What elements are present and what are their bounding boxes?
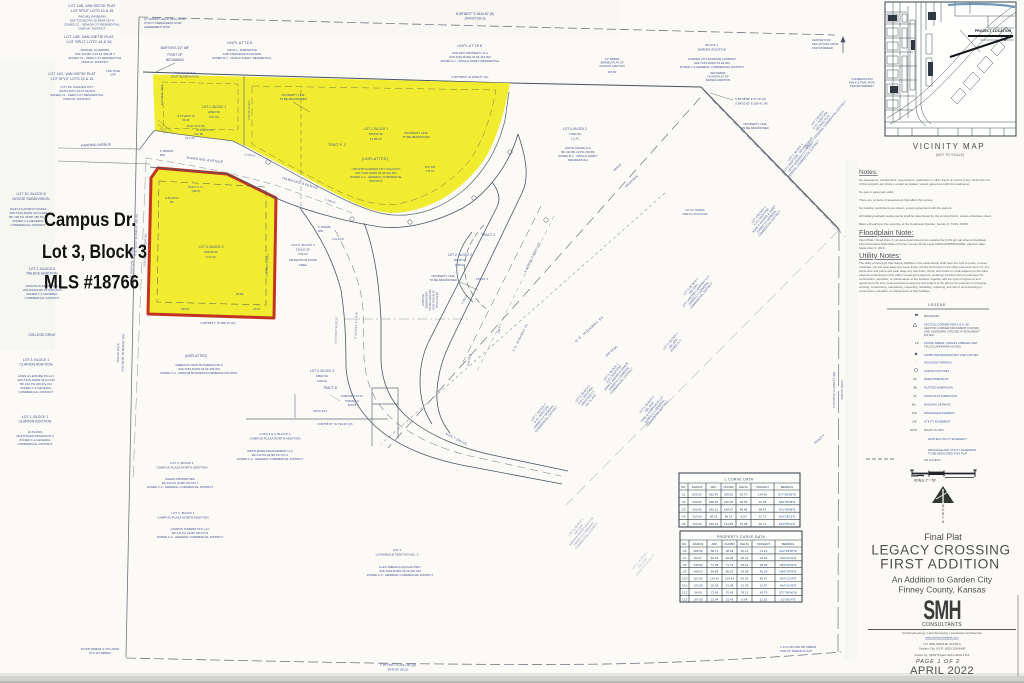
svg-text:RADIUS: RADIUS — [693, 542, 704, 546]
svg-text:S43°18'58"W: S43°18'58"W — [779, 549, 797, 553]
svg-text:VICINITY MAP: VICINITY MAP — [913, 142, 985, 151]
svg-text:12.85 AC: 12.85 AC — [370, 137, 382, 141]
svg-text:S 47°28'47" W: S 47°28'47" W — [177, 114, 195, 118]
svg-text:385.00: 385.00 — [693, 549, 703, 553]
svg-text:MASTER UTILITY EASEMENT: MASTER UTILITY EASEMENT — [928, 437, 967, 441]
svg-text:20.05: 20.05 — [711, 584, 719, 588]
svg-text:(NET±): (NET±) — [192, 189, 201, 193]
svg-text:BOUNDARY: BOUNDARY — [924, 314, 940, 318]
svg-text:1.1 AC: 1.1 AC — [571, 137, 580, 141]
svg-text:B/L: B/L — [912, 403, 917, 407]
svg-text:C7: C7 — [683, 556, 687, 560]
svg-text:6' SIDEWK: 6' SIDEWK — [160, 149, 174, 153]
svg-text:LOT SPLIT LOTS 14 & 15: LOT SPLIT LOTS 14 & 15 — [51, 77, 94, 81]
svg-text:99418 SF: 99418 SF — [454, 258, 467, 262]
svg-text:LOT 14C, VAN GIETIE PLAT: LOT 14C, VAN GIETIE PLAT — [48, 72, 96, 76]
svg-text:CAMPUS PLAZA NORTH ADDITION: CAMPUS PLAZA NORTH ADDITION — [157, 466, 208, 470]
svg-text:INTO THIS PLAT: INTO THIS PLAT — [432, 290, 436, 310]
svg-text:CLARION ADDITION: CLARION ADDITION — [19, 363, 53, 367]
svg-text:RESIDENTIAL): RESIDENTIAL) — [568, 158, 588, 162]
svg-text:Drawn by: MSW Project 2101-49: Drawn by: MSW Project 2101-4919-1714 — [915, 653, 970, 657]
svg-text:(D): (D) — [913, 377, 917, 381]
svg-text:BEGINNING: BEGINNING — [166, 58, 184, 62]
svg-text:COMMERCIAL DISTRICT: COMMERCIAL DISTRICT — [19, 390, 54, 394]
svg-text:18.41: 18.41 — [741, 556, 749, 560]
svg-text:6416 B: 6416 B — [348, 403, 357, 407]
svg-text:150.23: 150.23 — [709, 522, 719, 526]
svg-text:34843 SF: 34843 SF — [316, 374, 329, 378]
svg-text:S 89°58'07" E 1069.07' (D): S 89°58'07" E 1069.07' (D) — [452, 75, 489, 79]
svg-text:ARC: ARC — [712, 542, 718, 546]
svg-text:NO.: NO. — [682, 542, 687, 546]
svg-text:2640.00' (GLO): 2640.00' (GLO) — [840, 380, 844, 399]
svg-text:LOT 3, BLOCK 1: LOT 3, BLOCK 1 — [23, 358, 49, 362]
svg-text:SET REBAR: SET REBAR — [710, 71, 725, 75]
svg-text:An Addition to Garden City: An Addition to Garden City — [892, 575, 993, 585]
svg-text:205.96': 205.96' — [608, 70, 617, 74]
svg-text:140.00: 140.00 — [693, 563, 703, 567]
svg-text:71.76: 71.76 — [726, 563, 734, 567]
svg-text:ZONED R-1 - SINGLE FAMILY RESI: ZONED R-1 - SINGLE FAMILY RESIDENTIAL — [212, 56, 272, 60]
svg-text:LEGACY CROSSING: LEGACY CROSSING — [871, 543, 1010, 558]
svg-text:LOT 1, BLOCK 1: LOT 1, BLOCK 1 — [171, 511, 195, 515]
svg-text:70.46: 70.46 — [726, 590, 734, 594]
svg-text:SHOW PLAT DIMENSION: SHOW PLAT DIMENSION — [924, 394, 957, 398]
svg-text:89.93: 89.93 — [726, 570, 734, 574]
svg-text:58.32: 58.32 — [710, 515, 718, 519]
svg-text:0.80 AC: 0.80 AC — [317, 379, 327, 383]
svg-text:459.63: 459.63 — [693, 570, 703, 574]
svg-text:C3: C3 — [682, 507, 686, 511]
svg-text:LOT 14B, VAN GIETIE PLAT: LOT 14B, VAN GIETIE PLAT — [68, 4, 116, 8]
svg-text:25' B/L: 25' B/L — [236, 292, 245, 296]
svg-text:25.9' R/S: 25.9' R/S — [425, 165, 436, 169]
svg-text:58.29: 58.29 — [725, 515, 733, 519]
svg-text:188.48: 188.48 — [709, 500, 719, 504]
svg-text:TO BE DEDICATED THIS PLAT: TO BE DEDICATED THIS PLAT — [928, 452, 968, 456]
svg-text:52.14: 52.14 — [741, 549, 749, 553]
svg-text:COMPUTED/MARKER SET LINE CAP S: COMPUTED/MARKER SET LINE CAP SET — [924, 353, 979, 357]
svg-text:35.97' 25.9' B/L: 35.97' 25.9' B/L — [187, 124, 206, 128]
svg-text:NOVOE SUBDIVISION: NOVOE SUBDIVISION — [12, 197, 50, 201]
svg-text:RADIUS: RADIUS — [692, 485, 703, 489]
svg-text:SUBDIVISION: SUBDIVISION — [425, 292, 429, 309]
svg-text:S 01°05' E 142.1: S 01°05' E 142.1 — [247, 100, 251, 120]
svg-text:S64°12'24"E: S64°12'24"E — [780, 577, 797, 581]
svg-text:S37°58'46"W: S37°58'46"W — [779, 590, 797, 594]
svg-text:LOT 3, BLOCK 3: LOT 3, BLOCK 3 — [199, 245, 224, 249]
svg-text:RIGHT OF WAY: RIGHT OF WAY — [924, 428, 944, 432]
svg-text:N77°58'58"W: N77°58'58"W — [778, 493, 796, 497]
svg-text:CLARION ROOTION: CLARION ROOTION — [19, 420, 52, 424]
svg-text:84.33: 84.33 — [711, 556, 719, 560]
svg-text:4.41.23 W: 4.41.23 W — [332, 237, 344, 241]
svg-text:UNPLATTED: UNPLATTED — [227, 41, 253, 45]
svg-text:LOT 4, BLOCK 2: LOT 4, BLOCK 2 — [563, 127, 587, 131]
svg-text:BARNES ADDITION: BARNES ADDITION — [698, 48, 726, 52]
svg-text:84.05: 84.05 — [726, 556, 734, 560]
svg-text:D/E: D/E — [912, 411, 917, 415]
svg-text:S 58°02'02" E 206.41' (P): S 58°02'02" E 206.41' (P) — [735, 102, 768, 106]
svg-text:C8: C8 — [683, 563, 687, 567]
svg-text:5.72 AC: 5.72 AC — [206, 255, 216, 259]
svg-text:78.11: 78.11 — [741, 590, 749, 594]
svg-text:ZONED C-2 - GENERAL COMMERCIAL: ZONED C-2 - GENERAL COMMERCIAL DISTRICT — [157, 535, 224, 539]
svg-text:20.05: 20.05 — [740, 500, 748, 504]
svg-text:110.00: 110.00 — [694, 577, 703, 581]
svg-text:717 3RD AVENUE, SUITE A: 717 3RD AVENUE, SUITE A — [923, 642, 961, 646]
svg-text:Garden City, KS P: (620) 260-: Garden City, KS P: (620) 260-8400 — [919, 647, 966, 651]
svg-text:C2: C2 — [682, 500, 686, 504]
svg-text:COMMERCIAL DISTRICT: COMMERCIAL DISTRICT — [11, 223, 46, 227]
svg-text:BARNES PLAT OF: BARNES PLAT OF — [601, 61, 624, 65]
svg-text:S1°58'24"E: S1°58'24"E — [780, 597, 795, 601]
svg-text:LOT 2, BLOCK 1: LOT 2, BLOCK 1 — [364, 127, 388, 131]
svg-text:28.00: 28.00 — [760, 563, 768, 567]
svg-text:FND 1/2" REBAR IN CAP: FND 1/2" REBAR IN CAP — [780, 649, 812, 653]
svg-text:(NOT TO SCALE): (NOT TO SCALE) — [936, 153, 965, 157]
svg-text:C10: C10 — [682, 577, 688, 581]
svg-text:Notes:: Notes: — [859, 169, 878, 176]
svg-text:ADJACENT PARKING: ADJACENT PARKING — [924, 361, 952, 365]
svg-text:construction, operation or mai: construction, operation or maintenance o… — [859, 289, 931, 293]
svg-text:97.46: 97.46 — [759, 500, 767, 504]
svg-text:559618 SF: 559618 SF — [369, 132, 383, 136]
svg-text:WALK & TRAIL ROW: WALK & TRAIL ROW — [849, 81, 875, 85]
svg-text:8.20: 8.20 — [741, 515, 747, 519]
svg-text:1/2" REBAR: 1/2" REBAR — [605, 57, 620, 61]
svg-text:SITE/CALC: SITE/CALC — [345, 399, 359, 403]
svg-text:BLOCK 1: BLOCK 1 — [705, 43, 718, 47]
svg-text:46.68: 46.68 — [740, 507, 748, 511]
svg-text:ZONED C-2 - MEDIUM BUSINESS/CO: ZONED C-2 - MEDIUM BUSINESS/COMMERCE DIS… — [160, 371, 238, 375]
svg-text:No building restrictions are s: No building restrictions are shown, exce… — [859, 206, 952, 210]
svg-text:24.97': 24.97' — [254, 307, 261, 311]
svg-text:(UNPLATTED): (UNPLATTED) — [362, 157, 389, 161]
svg-text:There are no liens of assessme: There are no liens of assessment that af… — [859, 198, 933, 202]
svg-text:43.04: 43.04 — [741, 577, 749, 581]
svg-text:SCALE 1" = 50': SCALE 1" = 50' — [914, 479, 936, 483]
svg-text:Basis of bearing is the west l: Basis of bearing is the west line of the… — [859, 222, 969, 226]
svg-text:TO BE ABANDONED: TO BE ABANDONED — [402, 135, 430, 139]
svg-text:LOT 5, BLOCK 3: LOT 5, BLOCK 3 — [291, 243, 315, 247]
svg-text:POINT OF: POINT OF — [168, 53, 183, 57]
svg-text:144.83: 144.83 — [724, 522, 734, 526]
svg-text:187.00: 187.00 — [693, 597, 703, 601]
svg-text:LOVANDALE ADDITION NO. 3: LOVANDALE ADDITION NO. 3 — [376, 553, 419, 557]
svg-text:PHEASANT RUN: PHEASANT RUN — [174, 71, 195, 75]
svg-text:45.47: 45.47 — [760, 577, 768, 581]
svg-text:TO BE ABANDONED: TO BE ABANDONED — [279, 97, 307, 101]
svg-text:DISPLAY DISTRICT: DISPLAY DISTRICT — [78, 27, 105, 31]
svg-text:C13: C13 — [682, 597, 688, 601]
svg-text:N 89°58'07" E 2640.40' (D): N 89°58'07" E 2640.40' (D) — [456, 12, 494, 16]
svg-text:SMH: SMH — [923, 594, 961, 625]
svg-text:S31°48'58"E: S31°48'58"E — [779, 507, 796, 511]
svg-text:C6: C6 — [683, 549, 687, 553]
svg-text:TO BE ABANDONED: TO BE ABANDONED — [429, 278, 457, 282]
svg-text:TRACT 4: TRACT 4 — [481, 233, 495, 237]
svg-text:CAP: CAP — [110, 73, 116, 77]
svg-text:TO SET 12A3 P20: TO SET 12A3 P20 — [428, 289, 432, 311]
svg-text:11.07: 11.07 — [760, 584, 768, 588]
svg-text:LOT 2, BLOCK 2: LOT 2, BLOCK 2 — [448, 253, 472, 257]
svg-text:54.06: 54.06 — [694, 590, 702, 594]
svg-text:LOTS 3 & 4, BLOCK 1: LOTS 3 & 4, BLOCK 1 — [260, 432, 291, 436]
svg-text:AGREEMENT ROW: AGREEMENT ROW — [144, 25, 170, 29]
svg-text:71.38: 71.38 — [711, 563, 719, 567]
svg-text:N84°54'53"E: N84°54'53"E — [779, 563, 796, 567]
svg-text:ZONED C-2 - GENERAL COMMERCIAL: ZONED C-2 - GENERAL COMMERCIAL DISTRICT — [147, 485, 214, 489]
svg-text:MLS #18766: MLS #18766 — [44, 273, 139, 294]
svg-text:DISPLAY DISTRICT: DISPLAY DISTRICT — [81, 60, 108, 64]
svg-text:S02°18'13"E: S02°18'13"E — [779, 515, 796, 519]
svg-text:84.86: 84.86 — [711, 570, 719, 574]
svg-text:CURVE POINT/SET: CURVE POINT/SET — [924, 369, 950, 373]
svg-text:STK/C 64.5: STK/C 64.5 — [313, 409, 327, 413]
svg-text:C11: C11 — [682, 584, 688, 588]
svg-text:UTILITY EASEMENT: UTILITY EASEMENT — [924, 420, 951, 424]
svg-text:(PLAT RESERVATION): (PLAT RESERVATION) — [171, 75, 199, 79]
svg-text:COLLEGE DRIVE: COLLEGE DRIVE — [28, 333, 56, 337]
svg-text:TRACT B: TRACT B — [323, 386, 338, 390]
svg-text:21.94: 21.94 — [711, 597, 719, 601]
svg-text:LOT 1, BLOCK 1: LOT 1, BLOCK 1 — [202, 105, 226, 109]
svg-text:34.45: 34.45 — [760, 556, 768, 560]
svg-text:AREA: AREA — [299, 263, 308, 267]
svg-text:LOT 4, BLOCK 3: LOT 4, BLOCK 3 — [310, 369, 334, 373]
svg-text:BUILDING SETBACK: BUILDING SETBACK — [924, 403, 951, 407]
svg-text:24843 SF: 24843 SF — [208, 110, 221, 114]
svg-text:2640.00' (GLO): 2640.00' (GLO) — [388, 667, 409, 671]
svg-text:L CURVE DATA: L CURVE DATA — [725, 478, 754, 482]
svg-text:ZONED C-2 - GENERAL COMMERCIAL: ZONED C-2 - GENERAL COMMERCIAL DISTRICT — [237, 457, 304, 461]
svg-text:3.02 AC: 3.02 AC — [298, 252, 308, 256]
svg-text:CONSULTANTS: CONSULTANTS — [922, 622, 962, 628]
svg-text:2640.30' (GLO): 2640.30' (GLO) — [116, 343, 120, 362]
svg-text:UNPLATTED: UNPLATTED — [457, 44, 483, 48]
svg-text:All building setback requireme: All building setback requirements shall … — [859, 214, 992, 218]
svg-text:LOT 2, BLOCK 8: LOT 2, BLOCK 8 — [29, 267, 55, 271]
svg-text:AUX/GCK ADDITION: AUX/GCK ADDITION — [599, 64, 625, 68]
svg-text:N 89°58'07" W 791.00' (D): N 89°58'07" W 791.00' (D) — [317, 422, 352, 426]
svg-text:(P): (P) — [913, 394, 917, 398]
svg-text:182.12: 182.12 — [709, 507, 719, 511]
svg-text:71.19: 71.19 — [760, 549, 768, 553]
svg-text:TELCO/LANDMARK NOTED): TELCO/LANDMARK NOTED) — [924, 345, 961, 349]
svg-text:ROW: ROW — [910, 428, 917, 432]
svg-text:24.08: 24.08 — [741, 570, 749, 574]
svg-text:2640.87'(GLO): 2640.87'(GLO) — [465, 17, 486, 21]
svg-text:DELTA: DELTA — [739, 485, 748, 489]
svg-text:C4: C4 — [682, 515, 686, 519]
svg-text:310.00: 310.00 — [692, 515, 702, 519]
svg-text:ON NW PLAT OF: ON NW PLAT OF — [708, 75, 729, 79]
svg-text:330.00: 330.00 — [692, 507, 702, 511]
svg-text:262.45: 262.45 — [709, 493, 719, 497]
svg-text:S 89°58'17" W 288.49' (D): S 89°58'17" W 288.49' (D) — [201, 321, 236, 325]
svg-text:FND 5/8 REBAR: FND 5/8 REBAR — [812, 46, 833, 50]
svg-text:U/E: U/E — [912, 420, 917, 424]
svg-text:CHORD: CHORD — [723, 485, 733, 489]
svg-text:Campus Dr.: Campus Dr. — [44, 210, 136, 231]
svg-text:NO.: NO. — [681, 485, 686, 489]
svg-text:(UNPLATTED): (UNPLATTED) — [185, 354, 207, 358]
svg-text:ZONED A-1 - SINGLE FAMILY RESI: ZONED A-1 - SINGLE FAMILY RESIDENTIAL — [440, 59, 499, 63]
svg-text:LEGEND: LEGEND — [928, 303, 946, 307]
svg-text:LOT SPLIT LOTS 14 & 15: LOT SPLIT LOTS 14 & 15 — [71, 9, 114, 13]
svg-text:S29°42'47"E: S29°42'47"E — [780, 556, 797, 560]
svg-text:SLP B/L: SLP B/L — [194, 132, 204, 136]
svg-text:No gas or easement valid.: No gas or easement valid. — [859, 190, 894, 194]
svg-text:BEARING: BEARING — [782, 542, 795, 546]
svg-text:BARTON'S 1/2" 5/8": BARTON'S 1/2" 5/8" — [161, 46, 190, 50]
svg-text:73.00: 73.00 — [711, 590, 719, 594]
svg-text:LOT 10, BLOCK 8: LOT 10, BLOCK 8 — [16, 192, 45, 196]
svg-text:S 58°38'58" E 27.00' (D): S 58°38'58" E 27.00' (D) — [735, 97, 766, 101]
svg-text:BARNES ADDITION: BARNES ADDITION — [706, 78, 731, 82]
svg-text:TANGENT: TANGENT — [757, 542, 770, 546]
svg-text:Utility Notes:: Utility Notes: — [859, 251, 901, 260]
svg-text:S44°58'11"E: S44°58'11"E — [779, 522, 796, 526]
svg-text:25.9' B/L 29.97': 25.9' B/L 29.97' — [196, 128, 214, 132]
svg-text:OVERVIEW 21.21': OVERVIEW 21.21' — [341, 394, 364, 398]
svg-text:B/L: B/L — [170, 200, 175, 204]
svg-text:DRAINAGE EASEMENT: DRAINAGE EASEMENT — [924, 411, 955, 415]
svg-text:31.71: 31.71 — [759, 515, 767, 519]
svg-text:2.28 AC: 2.28 AC — [455, 263, 465, 267]
svg-text:LOT 1: LOT 1 — [393, 548, 402, 552]
svg-text:GREASY DANSONS: GREASY DANSONS — [682, 212, 707, 216]
svg-text:NOTED: NOTED — [924, 333, 934, 337]
svg-text:C5: C5 — [682, 522, 686, 526]
svg-text:58.73: 58.73 — [711, 549, 719, 553]
svg-text:S44°31'42"E: S44°31'42"E — [780, 584, 797, 588]
svg-text:COMMERCIAL DISTRICT: COMMERCIAL DISTRICT — [18, 442, 53, 446]
svg-text:Finney County, Kansas: Finney County, Kansas — [898, 585, 985, 595]
svg-text:": " — [916, 361, 917, 365]
svg-text:NO ACCESS: NO ACCESS — [924, 458, 940, 462]
svg-text:59.45': 59.45' — [182, 118, 190, 122]
svg-text:TRACT P -2: TRACT P -2 — [328, 143, 345, 147]
svg-text:B/W: B/W — [160, 153, 166, 157]
svg-text:DISPLAY DISTRICT: DISPLAY DISTRICT — [63, 97, 90, 101]
svg-text:ZONED C-2 GENERAL COMMERCIAL D: ZONED C-2 GENERAL COMMERCIAL DISTRICT — [680, 65, 745, 69]
svg-text:B/W: B/W — [318, 229, 323, 233]
svg-text:21.43: 21.43 — [726, 597, 734, 601]
svg-text:PROJECT LOCATION: PROJECT LOCATION — [975, 29, 1012, 33]
svg-text:38.59: 38.59 — [726, 549, 734, 553]
svg-text:(M): (M) — [913, 386, 917, 390]
svg-text:ZONED C-2 - GENERAL COMMERCIAL: ZONED C-2 - GENERAL COMMERCIAL DISTRICT — [367, 573, 434, 577]
svg-text:120.00: 120.00 — [693, 584, 703, 588]
svg-text:LOOPING: LOOPING — [421, 294, 425, 306]
svg-text:A 80'x50'x?: A 80'x50'x? — [165, 196, 179, 200]
svg-text:Lot 3, Block 3: Lot 3, Block 3 — [42, 242, 147, 263]
svg-text:ARC: ARC — [711, 485, 717, 489]
svg-text:190.02': 190.02' — [181, 307, 190, 311]
svg-text:124.42: 124.42 — [710, 577, 720, 581]
svg-text:104.00: 104.00 — [692, 522, 702, 526]
svg-text:77480 SF: 77480 SF — [569, 132, 582, 136]
svg-text:CAMPUS PLAZA NORTH ADDITION: CAMPUS PLAZA NORTH ADDITION — [158, 516, 209, 520]
svg-text:N 01°02'53" W 2640.87' (M): N 01°02'53" W 2640.87' (M) — [121, 334, 126, 371]
svg-text:FD 1/2" REBAR: FD 1/2" REBAR — [685, 208, 704, 212]
svg-text:82.97: 82.97 — [694, 556, 702, 560]
svg-text:TRACT 1: TRACT 1 — [476, 277, 489, 281]
svg-text:21.08: 21.08 — [726, 584, 734, 588]
svg-text:43.79: 43.79 — [760, 590, 768, 594]
svg-text:September 3, 2010.: September 3, 2010. — [859, 246, 886, 250]
svg-text:625.00: 625.00 — [692, 493, 702, 497]
svg-text:C9: C9 — [683, 570, 687, 574]
svg-text:184.57: 184.57 — [724, 507, 734, 511]
svg-text:LOT 1, BLOCK 1: LOT 1, BLOCK 1 — [22, 415, 48, 419]
svg-text:LOT SPLIT LOTS 14 & 15: LOT SPLIT LOTS 14 & 15 — [66, 39, 111, 44]
svg-text:192.05: 192.05 — [724, 500, 734, 504]
svg-text:S 01°05'12" E 2640.47' (M): S 01°05'12" E 2640.47' (M) — [832, 372, 836, 408]
svg-text:45.24: 45.24 — [760, 570, 768, 574]
svg-text:259.62: 259.62 — [724, 493, 734, 497]
svg-text:FD: FD — [915, 341, 919, 345]
svg-text:60.70: 60.70 — [740, 493, 748, 497]
svg-text:TANGENT: TANGENT — [756, 485, 769, 489]
svg-text:LOT 2, BLOCK 1: LOT 2, BLOCK 1 — [170, 461, 194, 465]
svg-text:42.71: 42.71 — [759, 522, 767, 526]
svg-text:PLATTED DIMENSION: PLATTED DIMENSION — [924, 386, 953, 390]
svg-text:of this property are shown, ex: of this property are shown, except as pl… — [859, 182, 970, 186]
svg-text:Floodplain Note:: Floodplain Note: — [859, 228, 914, 237]
svg-text:BY PL PG 84: BY PL PG 84 — [435, 292, 439, 308]
svg-text:124.42: 124.42 — [725, 577, 735, 581]
svg-text:C12: C12 — [682, 590, 688, 594]
svg-text:25 F (N): 25 F (N) — [185, 136, 195, 140]
svg-text:www.smhconsultants.com: www.smhconsultants.com — [925, 636, 959, 640]
svg-text:TO BE ABANDONED: TO BE ABANDONED — [741, 126, 769, 130]
svg-text:CHORD: CHORD — [724, 542, 734, 546]
svg-text:131512 SF: 131512 SF — [296, 248, 310, 252]
svg-text:TRACT 2 T.L.: TRACT 2 T.L. — [188, 185, 204, 189]
svg-text:28.21: 28.21 — [741, 563, 749, 567]
svg-text:94.67: 94.67 — [759, 507, 767, 511]
svg-text:11.10: 11.10 — [760, 597, 768, 601]
svg-text:91.58: 91.58 — [740, 522, 748, 526]
svg-text:CONSERVATION: CONSERVATION — [851, 77, 872, 81]
svg-text:0.57 AC: 0.57 AC — [209, 115, 219, 119]
svg-text:DELTA: DELTA — [740, 542, 749, 546]
svg-text:7' B' CL: 7' B' CL — [426, 169, 435, 173]
svg-text:Final Plat: Final Plat — [924, 532, 962, 542]
svg-text:6.94: 6.94 — [742, 597, 748, 601]
svg-text:540.00: 540.00 — [692, 500, 702, 504]
svg-text:DEED DIMENSION: DEED DIMENSION — [924, 377, 948, 381]
svg-text:CAMPUS PLAZA NORTH ADDITION: CAMPUS PLAZA NORTH ADDITION — [250, 437, 301, 441]
svg-text:FIRST ADDITION: FIRST ADDITION — [880, 557, 1000, 572]
svg-text:APRIL 2022: APRIL 2022 — [910, 665, 974, 677]
svg-text:249136 SF: 249136 SF — [204, 250, 218, 254]
svg-text:PER RETIREMENT: PER RETIREMENT — [850, 84, 874, 88]
svg-text:DETENTION POND: DETENTION POND — [289, 258, 317, 262]
svg-text:DISTRICT: DISTRICT — [369, 179, 383, 183]
svg-text:6' SIDEWK: 6' SIDEWK — [318, 225, 331, 229]
svg-text:Civil Engineering • Land Sur: Civil Engineering • Land Surveying • Lan… — [902, 631, 982, 635]
svg-text:PLS 12" REBAR: PLS 12" REBAR — [89, 651, 110, 655]
svg-text:BEARING: BEARING — [781, 485, 794, 489]
svg-text:S84°38'48"E: S84°38'48"E — [779, 500, 796, 504]
svg-text:COMMERCIAL DISTRICT: COMMERCIAL DISTRICT — [25, 296, 60, 300]
svg-text:PROPERTY CURVE DATA: PROPERTY CURVE DATA — [717, 535, 766, 539]
svg-text:134.46: 134.46 — [758, 493, 768, 497]
